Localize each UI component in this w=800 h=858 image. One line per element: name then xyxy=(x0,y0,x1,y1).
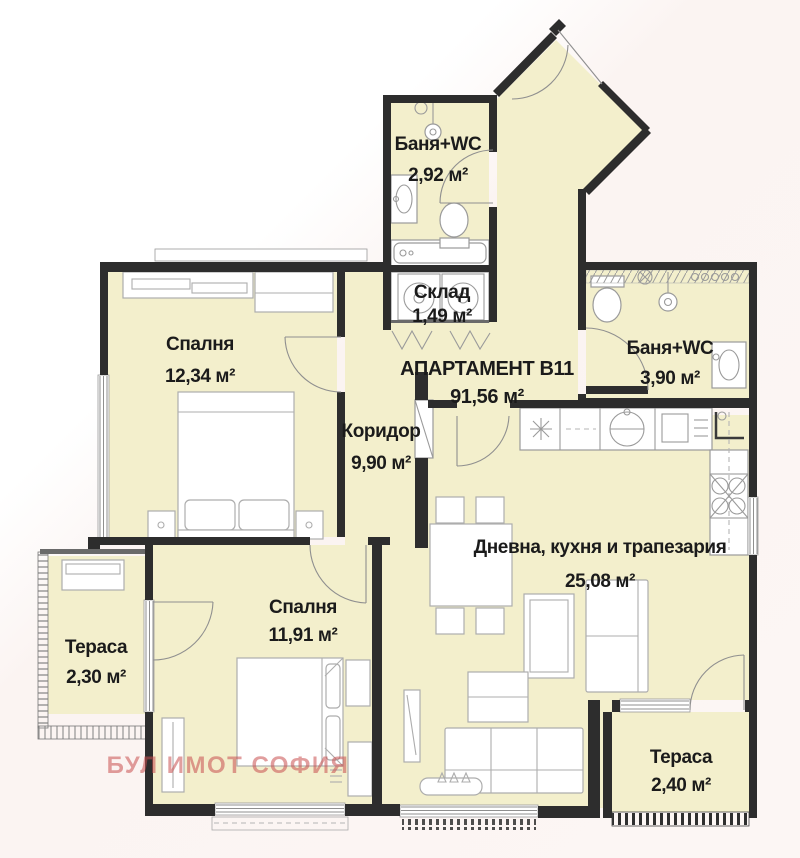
storage-area: 1,49 м² xyxy=(412,306,472,327)
chair xyxy=(436,497,464,523)
bath-right-label: Баня+WC xyxy=(627,338,714,359)
dishwasher-icon xyxy=(530,418,552,440)
chair xyxy=(476,608,504,634)
pillow xyxy=(239,500,289,530)
floor-plan-page: Баня+WC 2,92 м² Склад 1,49 м² АПАРТАМЕНТ… xyxy=(0,0,800,858)
pillow xyxy=(185,500,235,530)
bath-top-label: Баня+WC xyxy=(395,134,482,155)
pendant-light-icon xyxy=(659,293,677,311)
bedroom2-area: 11,91 м² xyxy=(269,625,338,646)
chair xyxy=(476,497,504,523)
storage-label: Склад xyxy=(414,282,470,303)
bedroom1-area: 12,34 м² xyxy=(165,366,235,387)
nightstand xyxy=(346,660,370,706)
armchair xyxy=(524,594,574,678)
window-sill xyxy=(402,819,536,830)
upper-ledge xyxy=(155,249,367,261)
terrace-left-area: 2,30 м² xyxy=(66,667,126,688)
pillow xyxy=(326,664,340,708)
living-label: Дневна, кухня и трапезария xyxy=(474,537,727,558)
bedroom1-label: Спалня xyxy=(166,334,234,355)
nightstand xyxy=(148,511,175,539)
terrace-left-label: Тераса xyxy=(65,637,128,658)
apartment-area: 91,56 м² xyxy=(450,386,525,408)
closet xyxy=(255,272,333,312)
terrace-left-fixtures xyxy=(62,560,124,590)
nightstand xyxy=(296,511,323,539)
watermark: БУЛ ИМОТ СОФИЯ xyxy=(107,752,350,779)
toilet xyxy=(593,288,621,322)
bath-top-area: 2,92 м² xyxy=(408,165,468,186)
apartment-title: АПАРТАМЕНТ В11 xyxy=(400,358,574,380)
chair xyxy=(436,608,464,634)
terrace-right-railing xyxy=(612,812,749,826)
terrace-right-label: Тераса xyxy=(650,747,713,768)
dresser xyxy=(348,742,372,796)
tiled-ledge xyxy=(586,270,749,283)
bath-right-door-leaf xyxy=(586,386,648,394)
terrace-left-railing xyxy=(38,552,48,728)
toilet xyxy=(440,203,468,237)
wardrobe xyxy=(123,272,253,298)
bath-right-area: 3,90 м² xyxy=(640,368,700,389)
corridor-area: 9,90 м² xyxy=(351,453,411,474)
terrace-right-area: 2,40 м² xyxy=(651,775,711,796)
terrace-left-railing xyxy=(38,726,150,739)
bedroom2-label: Спалня xyxy=(269,597,337,618)
living-area: 25,08 м² xyxy=(565,571,635,592)
washbasin-cabinet xyxy=(712,342,746,388)
floor-plan-drawing: Баня+WC 2,92 м² Склад 1,49 м² АПАРТАМЕНТ… xyxy=(0,0,800,858)
corridor-label: Коридор xyxy=(342,421,421,442)
